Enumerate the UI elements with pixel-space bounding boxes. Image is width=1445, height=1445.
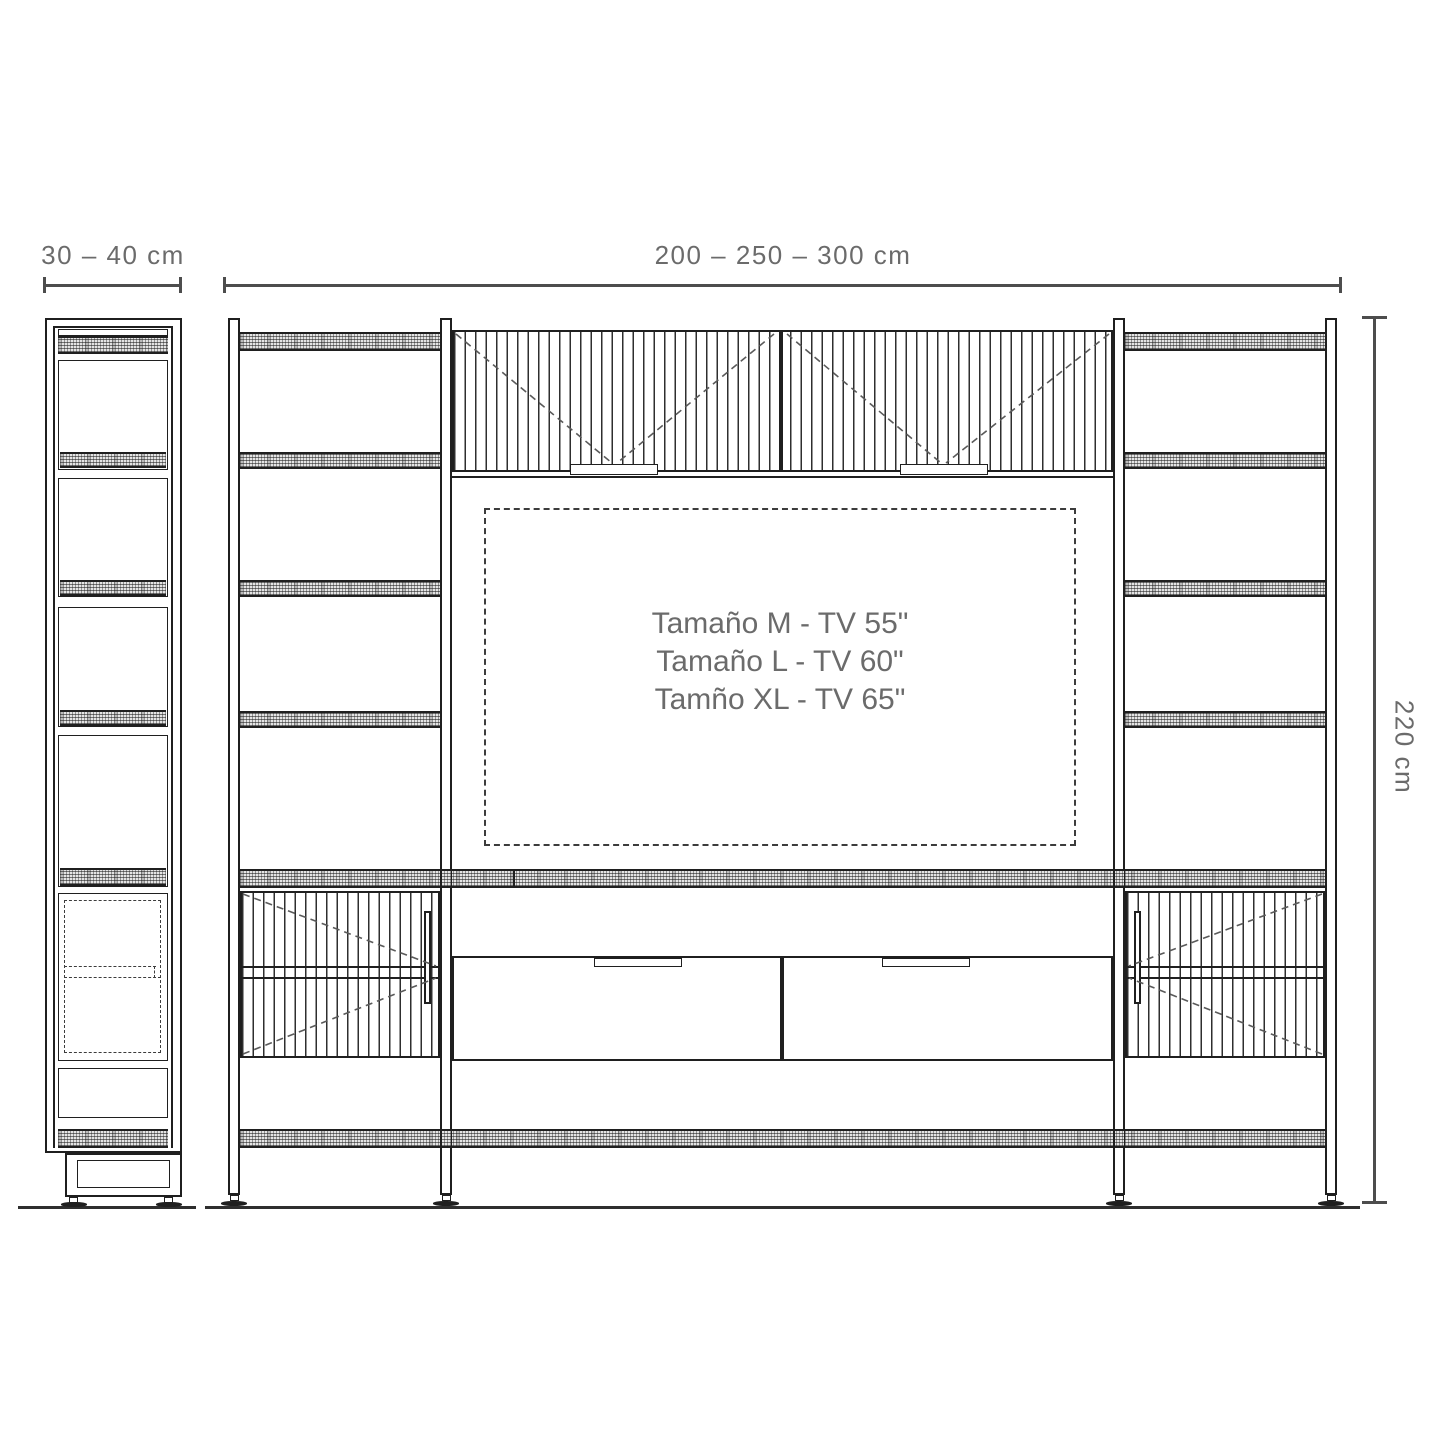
top-cabinet-bottom-rail bbox=[452, 476, 1113, 478]
drawer-handle-notch-left bbox=[594, 958, 682, 967]
post bbox=[1113, 318, 1125, 1195]
tv-size-line-1: Tamaño M - TV 55" bbox=[484, 605, 1076, 643]
post-foot-pad bbox=[433, 1201, 459, 1206]
side-shelf-hatch bbox=[60, 868, 166, 886]
band-seam bbox=[1124, 869, 1126, 888]
band-seam bbox=[1124, 1129, 1126, 1148]
lower-left-door-rail bbox=[240, 977, 440, 979]
side-shelf-hatch bbox=[60, 580, 166, 596]
left-column-shelf bbox=[240, 711, 440, 728]
side-compartment bbox=[58, 607, 168, 727]
tv-size-line-3: Tamño XL - TV 65" bbox=[484, 681, 1076, 719]
right-column-shelf bbox=[1125, 580, 1325, 597]
band-seam bbox=[513, 869, 515, 888]
band-seam bbox=[451, 1129, 453, 1148]
post-foot-pad bbox=[221, 1201, 247, 1206]
top-cabinet-door-divider bbox=[779, 330, 783, 472]
drawer-handle-notch-right bbox=[882, 958, 970, 967]
side-plinth-inner bbox=[77, 1160, 170, 1188]
top-cabinet-handle-left bbox=[570, 464, 658, 475]
side-top-strip bbox=[58, 329, 168, 336]
left-column-shelf bbox=[240, 332, 440, 351]
side-shelf-hatch bbox=[58, 336, 168, 354]
side-width-dimension-line bbox=[45, 284, 182, 287]
side-inner-wall-top bbox=[53, 326, 173, 328]
bottom-shelf-band bbox=[240, 1129, 1325, 1148]
side-shelf-hatch bbox=[58, 1129, 168, 1148]
left-column-shelf bbox=[240, 580, 440, 597]
lower-right-door-rail bbox=[1125, 977, 1325, 979]
height-dimension-label: 220 cm bbox=[1389, 700, 1420, 794]
post bbox=[1325, 318, 1337, 1195]
dimension-tick bbox=[179, 277, 182, 293]
side-compartment bbox=[58, 735, 168, 887]
post-foot-pad bbox=[1318, 1201, 1344, 1206]
side-hidden-shelf-line bbox=[64, 977, 161, 979]
lower-right-door-handle bbox=[1134, 911, 1141, 1004]
front-width-dimension-line bbox=[225, 284, 1341, 287]
dimension-tick bbox=[223, 277, 226, 293]
post-foot-pad bbox=[1106, 1201, 1132, 1206]
drawer-divider bbox=[780, 956, 784, 1061]
ground-line-front bbox=[205, 1206, 1360, 1209]
side-inner-wall-left bbox=[53, 326, 55, 1148]
post bbox=[440, 318, 452, 1195]
right-column-shelf bbox=[1125, 452, 1325, 469]
band-seam bbox=[440, 869, 442, 888]
height-dimension-line bbox=[1373, 318, 1376, 1204]
lower-right-slatted-door bbox=[1125, 891, 1325, 1058]
band-seam bbox=[440, 1129, 442, 1148]
side-hidden-shelf-line bbox=[64, 966, 156, 968]
tv-size-line-2: Tamaño L - TV 60" bbox=[484, 643, 1076, 681]
band-seam bbox=[1113, 869, 1115, 888]
furniture-technical-drawing: 30 – 40 cm 200 – 250 – bbox=[0, 0, 1445, 1445]
side-foot-pad bbox=[61, 1202, 87, 1207]
right-column-shelf bbox=[1125, 711, 1325, 728]
dimension-cap bbox=[1362, 1201, 1387, 1204]
lower-right-door-rail bbox=[1125, 966, 1325, 968]
tv-size-labels: Tamaño M - TV 55" Tamaño L - TV 60" Tamñ… bbox=[484, 605, 1076, 719]
side-width-dimension-label: 30 – 40 cm bbox=[38, 240, 188, 271]
band-seam bbox=[1113, 1129, 1115, 1148]
dimension-tick bbox=[43, 277, 46, 293]
left-column-shelf bbox=[240, 452, 440, 469]
side-inner-wall-right bbox=[171, 326, 173, 1148]
side-compartment bbox=[58, 1068, 168, 1118]
dimension-cap bbox=[1362, 316, 1387, 319]
lower-left-door-rail bbox=[240, 966, 440, 968]
lower-left-door-handle bbox=[424, 911, 431, 1004]
side-shelf-hatch bbox=[60, 710, 166, 726]
middle-shelf-band bbox=[240, 869, 1325, 888]
post bbox=[228, 318, 240, 1195]
side-shelf-hatch bbox=[60, 452, 166, 468]
front-width-dimension-label: 200 – 250 – 300 cm bbox=[583, 240, 983, 271]
right-column-shelf bbox=[1125, 332, 1325, 351]
top-cabinet-handle-right bbox=[900, 464, 988, 475]
side-foot-pad bbox=[156, 1202, 182, 1207]
band-seam bbox=[451, 869, 453, 888]
lower-left-slatted-door bbox=[240, 891, 440, 1058]
dimension-tick bbox=[1339, 277, 1342, 293]
